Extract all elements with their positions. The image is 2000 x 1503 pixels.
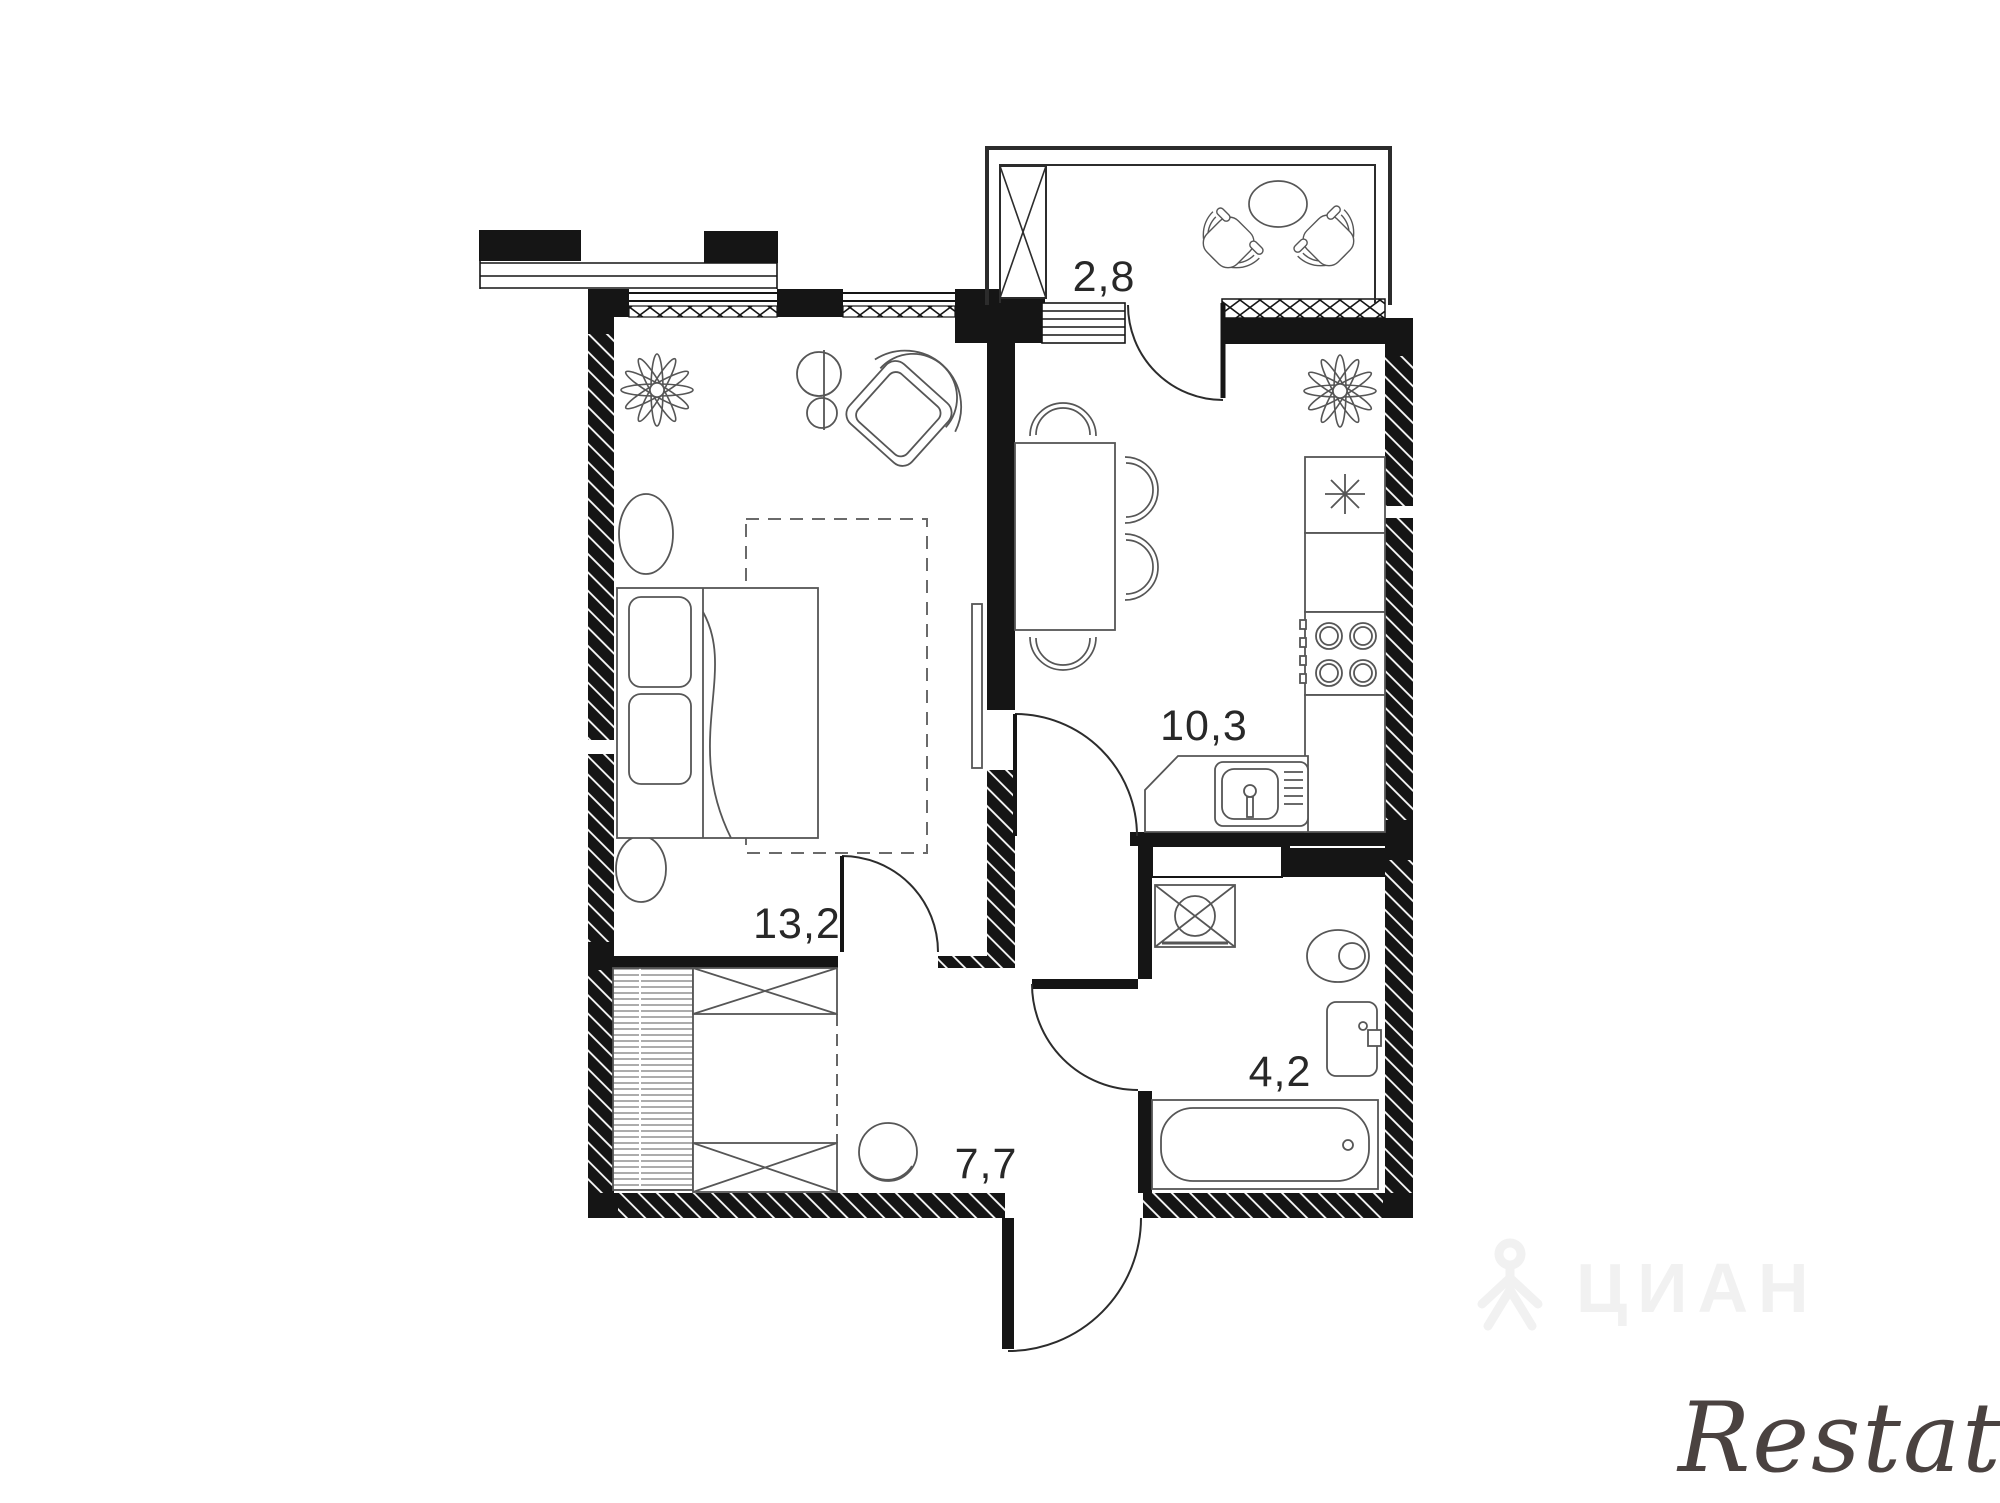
wall-right-solid bbox=[1385, 820, 1413, 860]
pillow bbox=[629, 694, 691, 784]
wall-xhatch-strip bbox=[1222, 299, 1385, 318]
bathroom bbox=[1152, 885, 1381, 1189]
wall-divider bbox=[987, 289, 1015, 710]
fridge bbox=[1305, 457, 1385, 533]
wall-divider-lower bbox=[987, 770, 1015, 956]
kitchen-sink bbox=[1215, 762, 1308, 826]
floor-plan-page: 2,8 10,3 13,2 7,7 4,2 ЦИАН Restate bbox=[0, 0, 2000, 1503]
pouf bbox=[859, 1123, 917, 1181]
wall-bottom-cap-r bbox=[1383, 1193, 1413, 1218]
floor-lamp-base bbox=[807, 398, 837, 428]
wall-right-joint bbox=[1385, 506, 1413, 518]
area-label-hallway: 7,7 bbox=[955, 1140, 1018, 1188]
wardrobe-rail bbox=[613, 968, 693, 1190]
bed bbox=[617, 588, 818, 838]
fridge-snowflake-icon bbox=[1325, 474, 1365, 514]
wall-bedroom-bottom bbox=[614, 956, 838, 968]
tv-console bbox=[972, 604, 982, 768]
kitchen-door-arc bbox=[1015, 714, 1137, 836]
wall-balcony-pier bbox=[1015, 295, 1045, 343]
wall-kitchen-bath bbox=[1130, 832, 1413, 846]
bedroom-door-arc bbox=[842, 856, 938, 952]
plant-icon bbox=[621, 354, 693, 426]
wall-right-cap bbox=[1385, 318, 1413, 356]
cian-watermark: ЦИАН bbox=[1462, 1238, 1819, 1338]
wall-bottom-right bbox=[1143, 1193, 1413, 1218]
balcony-door-arc bbox=[1128, 305, 1223, 400]
area-label-kitchen: 10,3 bbox=[1160, 702, 1248, 750]
wall-right bbox=[1385, 318, 1413, 1193]
toilet bbox=[1307, 930, 1369, 982]
dining-chair bbox=[1125, 457, 1158, 523]
balcony bbox=[987, 148, 1390, 400]
wall-joint-gap bbox=[588, 740, 614, 754]
window-sill-hatch bbox=[629, 306, 777, 317]
restate-watermark: Restate bbox=[1678, 1382, 2000, 1494]
dining-chair bbox=[1030, 403, 1096, 436]
wall-bath-left-upper bbox=[1138, 877, 1152, 979]
window-sill-hatch-2 bbox=[843, 306, 955, 317]
vent-duct bbox=[1152, 846, 1282, 877]
kitchen-counter-lower bbox=[1305, 695, 1385, 832]
bathroom-door-arc bbox=[1032, 984, 1138, 1090]
armchair bbox=[832, 329, 983, 479]
wall-bedroom-bottom-right bbox=[938, 956, 1015, 968]
duct-cap-left bbox=[1138, 846, 1152, 877]
kitchen bbox=[1015, 355, 1385, 832]
bathtub bbox=[1152, 1100, 1378, 1189]
hallway bbox=[613, 968, 917, 1192]
wall-left-cap bbox=[588, 289, 614, 334]
wall-bottom-cap-l bbox=[588, 1193, 618, 1218]
wall-bottom-left bbox=[588, 1193, 1005, 1218]
entrance-door-leaf bbox=[1002, 1218, 1014, 1349]
nightstand-bottom bbox=[616, 836, 666, 902]
floor-lamp-shade bbox=[797, 352, 841, 396]
stove bbox=[1300, 612, 1385, 695]
washing-machine bbox=[1155, 885, 1235, 947]
washbasin bbox=[1327, 1002, 1381, 1076]
wall-bath-top bbox=[1290, 848, 1387, 877]
area-label-balcony: 2,8 bbox=[1073, 253, 1136, 301]
entrance-door-arc bbox=[1008, 1218, 1141, 1351]
bedroom bbox=[616, 329, 983, 902]
bathroom-door-leaf bbox=[1032, 979, 1138, 989]
dining-chair bbox=[1030, 637, 1096, 670]
area-label-bedroom: 13,2 bbox=[753, 900, 841, 948]
bay-pier-right bbox=[705, 232, 777, 262]
bay-pier-left bbox=[480, 231, 580, 260]
cian-person-icon bbox=[1462, 1238, 1558, 1338]
pillow bbox=[629, 597, 691, 687]
dining-chair bbox=[1125, 534, 1158, 600]
wall-top-right bbox=[1222, 318, 1385, 344]
cian-watermark-text: ЦИАН bbox=[1576, 1248, 1819, 1328]
wall-left-solid bbox=[588, 942, 614, 970]
kitchen-window-frame bbox=[1042, 303, 1125, 343]
wardrobe-cabinet bbox=[693, 968, 837, 1014]
plant-icon bbox=[1304, 355, 1376, 427]
wardrobe-cabinet bbox=[693, 1143, 837, 1192]
dining-table bbox=[1015, 443, 1115, 630]
balcony-table bbox=[1249, 181, 1307, 227]
wall-top-pier bbox=[777, 289, 843, 317]
wall-bath-left-lower bbox=[1138, 1091, 1152, 1193]
area-label-bathroom: 4,2 bbox=[1249, 1048, 1312, 1096]
kitchen-counter bbox=[1305, 533, 1385, 612]
nightstand-top bbox=[619, 494, 673, 574]
